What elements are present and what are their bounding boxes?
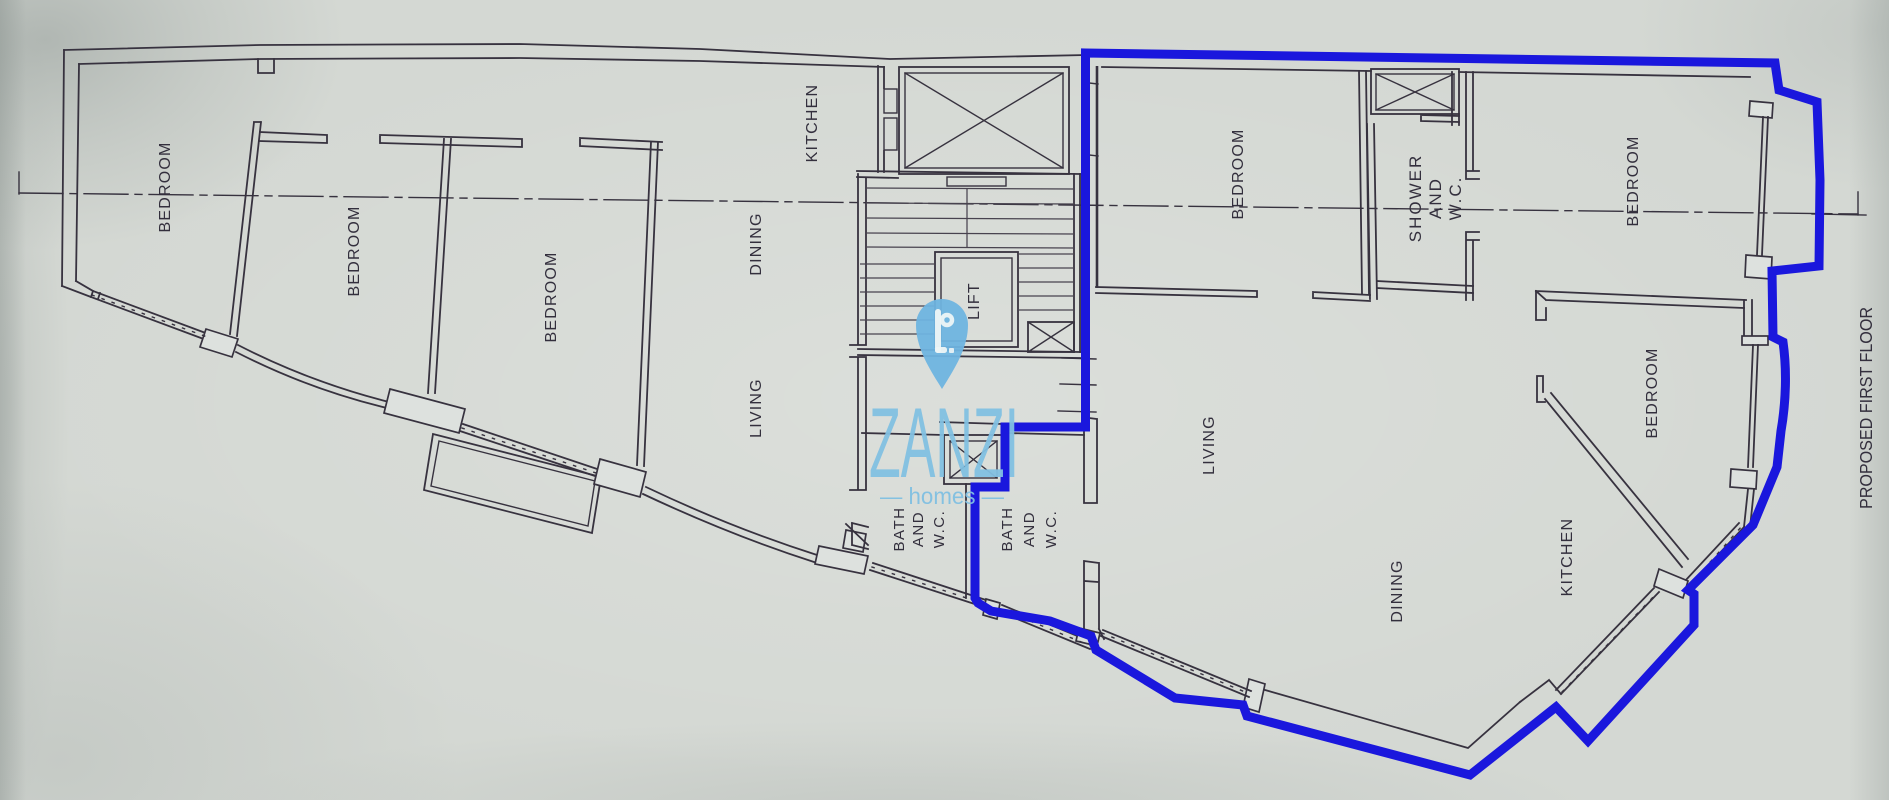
svg-text:AND: AND	[1021, 511, 1038, 547]
svg-text:W.C.: W.C.	[1446, 176, 1465, 221]
svg-text:BEDROOM: BEDROOM	[346, 205, 363, 296]
svg-text:KITCHEN: KITCHEN	[804, 84, 821, 163]
svg-text:AND: AND	[1426, 177, 1445, 219]
svg-text:BEDROOM: BEDROOM	[543, 251, 560, 342]
svg-text:BATH: BATH	[891, 507, 908, 552]
svg-text:— homes —: — homes —	[880, 483, 1004, 509]
svg-text:DINING: DINING	[748, 212, 765, 275]
svg-text:PROPOSED FIRST FLOOR: PROPOSED FIRST FLOOR	[1856, 307, 1876, 509]
svg-text:BEDROOM: BEDROOM	[1644, 347, 1661, 438]
svg-text:SHOWER: SHOWER	[1406, 154, 1425, 243]
svg-text:AND: AND	[910, 511, 927, 547]
svg-text:ZANZI: ZANZI	[869, 387, 1019, 498]
svg-text:BATH: BATH	[999, 507, 1016, 552]
svg-text:BEDROOM: BEDROOM	[157, 141, 174, 232]
svg-text:LIVING: LIVING	[748, 378, 765, 438]
svg-text:LIFT: LIFT	[966, 282, 983, 320]
svg-text:LIVING: LIVING	[1201, 415, 1218, 475]
svg-text:BEDROOM: BEDROOM	[1625, 135, 1642, 226]
svg-text:W.C.: W.C.	[1043, 510, 1060, 549]
svg-text:W.C.: W.C.	[931, 510, 948, 549]
svg-text:KITCHEN: KITCHEN	[1559, 518, 1576, 597]
svg-text:BEDROOM: BEDROOM	[1230, 128, 1247, 219]
svg-text:DINING: DINING	[1389, 559, 1406, 622]
